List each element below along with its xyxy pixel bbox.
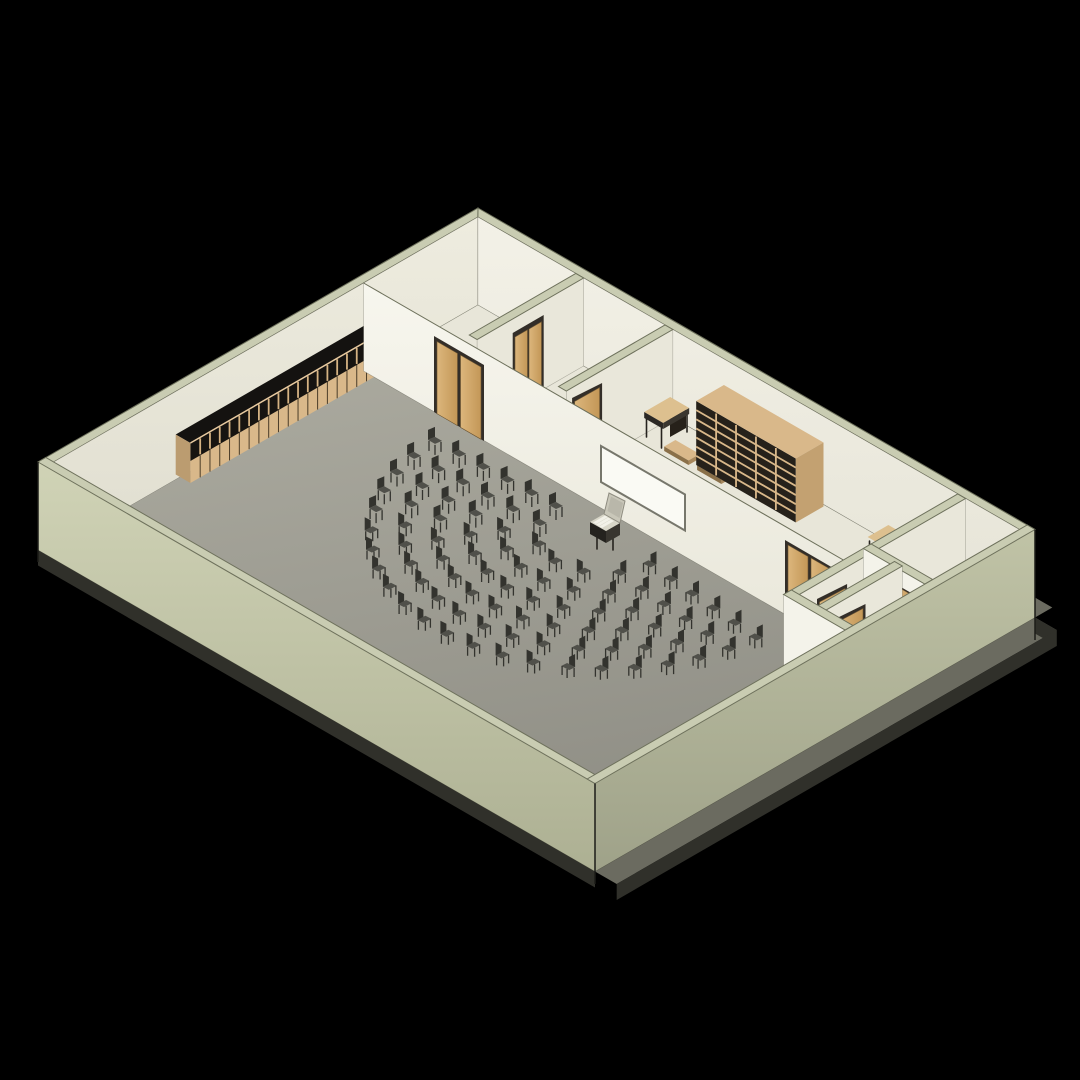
locker-end-panel bbox=[176, 435, 191, 484]
door-leaf-left bbox=[437, 342, 458, 426]
isometric-floor-plan-view bbox=[0, 0, 1080, 1080]
door-leaf-right bbox=[461, 355, 482, 439]
viewport-canvas[interactable] bbox=[0, 0, 1080, 1080]
